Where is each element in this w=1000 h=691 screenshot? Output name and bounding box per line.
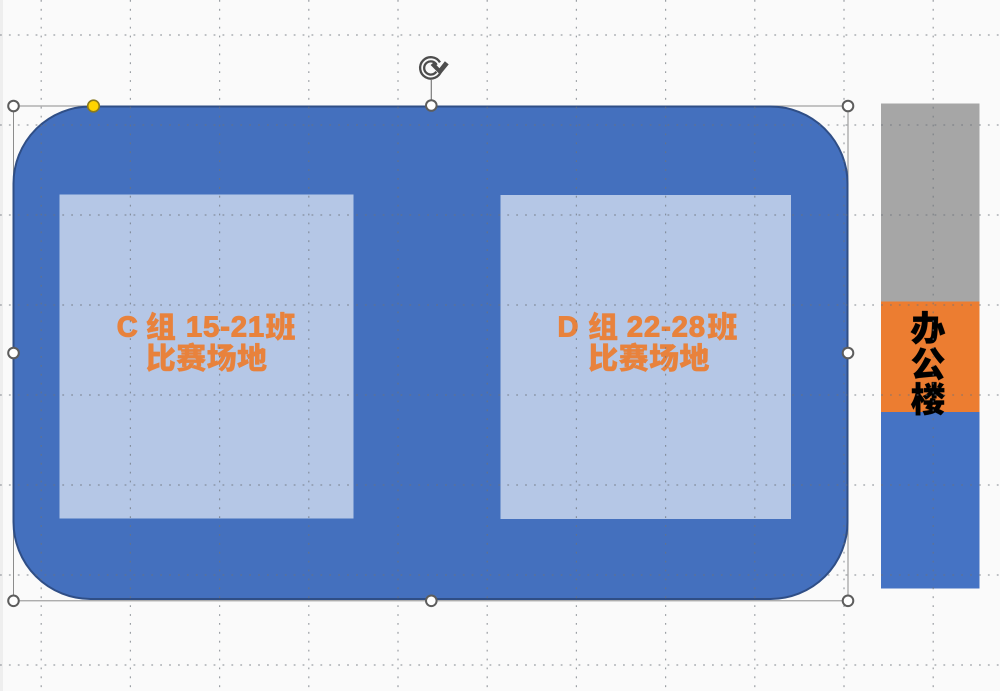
svg-text:C: C	[117, 312, 138, 344]
svg-text:D: D	[558, 312, 579, 344]
svg-text:15-21: 15-21	[186, 312, 265, 344]
svg-text:22-28: 22-28	[627, 312, 706, 344]
